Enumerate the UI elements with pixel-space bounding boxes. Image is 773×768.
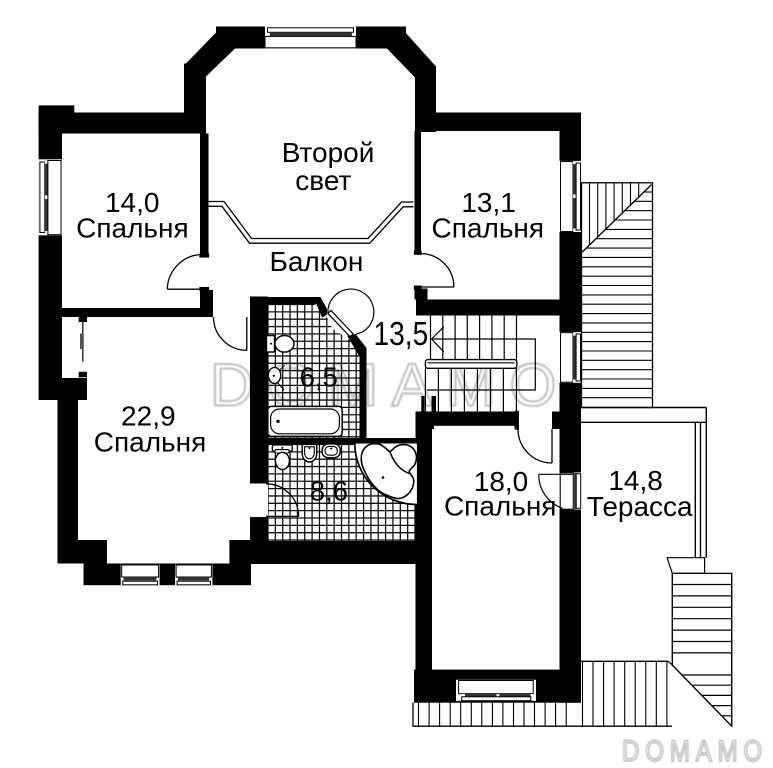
svg-text:13,5: 13,5	[374, 315, 429, 353]
svg-text:Спальня: Спальня	[76, 213, 189, 244]
svg-text:6,5: 6,5	[300, 362, 338, 393]
svg-text:Терасса: Терасса	[587, 491, 693, 522]
svg-text:Спальня: Спальня	[94, 427, 207, 458]
svg-text:Балкон: Балкон	[269, 246, 363, 277]
svg-text:свет: свет	[295, 165, 351, 196]
svg-text:Второй: Второй	[282, 137, 375, 168]
svg-text:DOMAMO: DOMAMO	[622, 735, 768, 768]
svg-text:8,6: 8,6	[310, 476, 348, 507]
svg-text:Спальня: Спальня	[444, 491, 557, 522]
svg-text:Спальня: Спальня	[432, 213, 545, 244]
